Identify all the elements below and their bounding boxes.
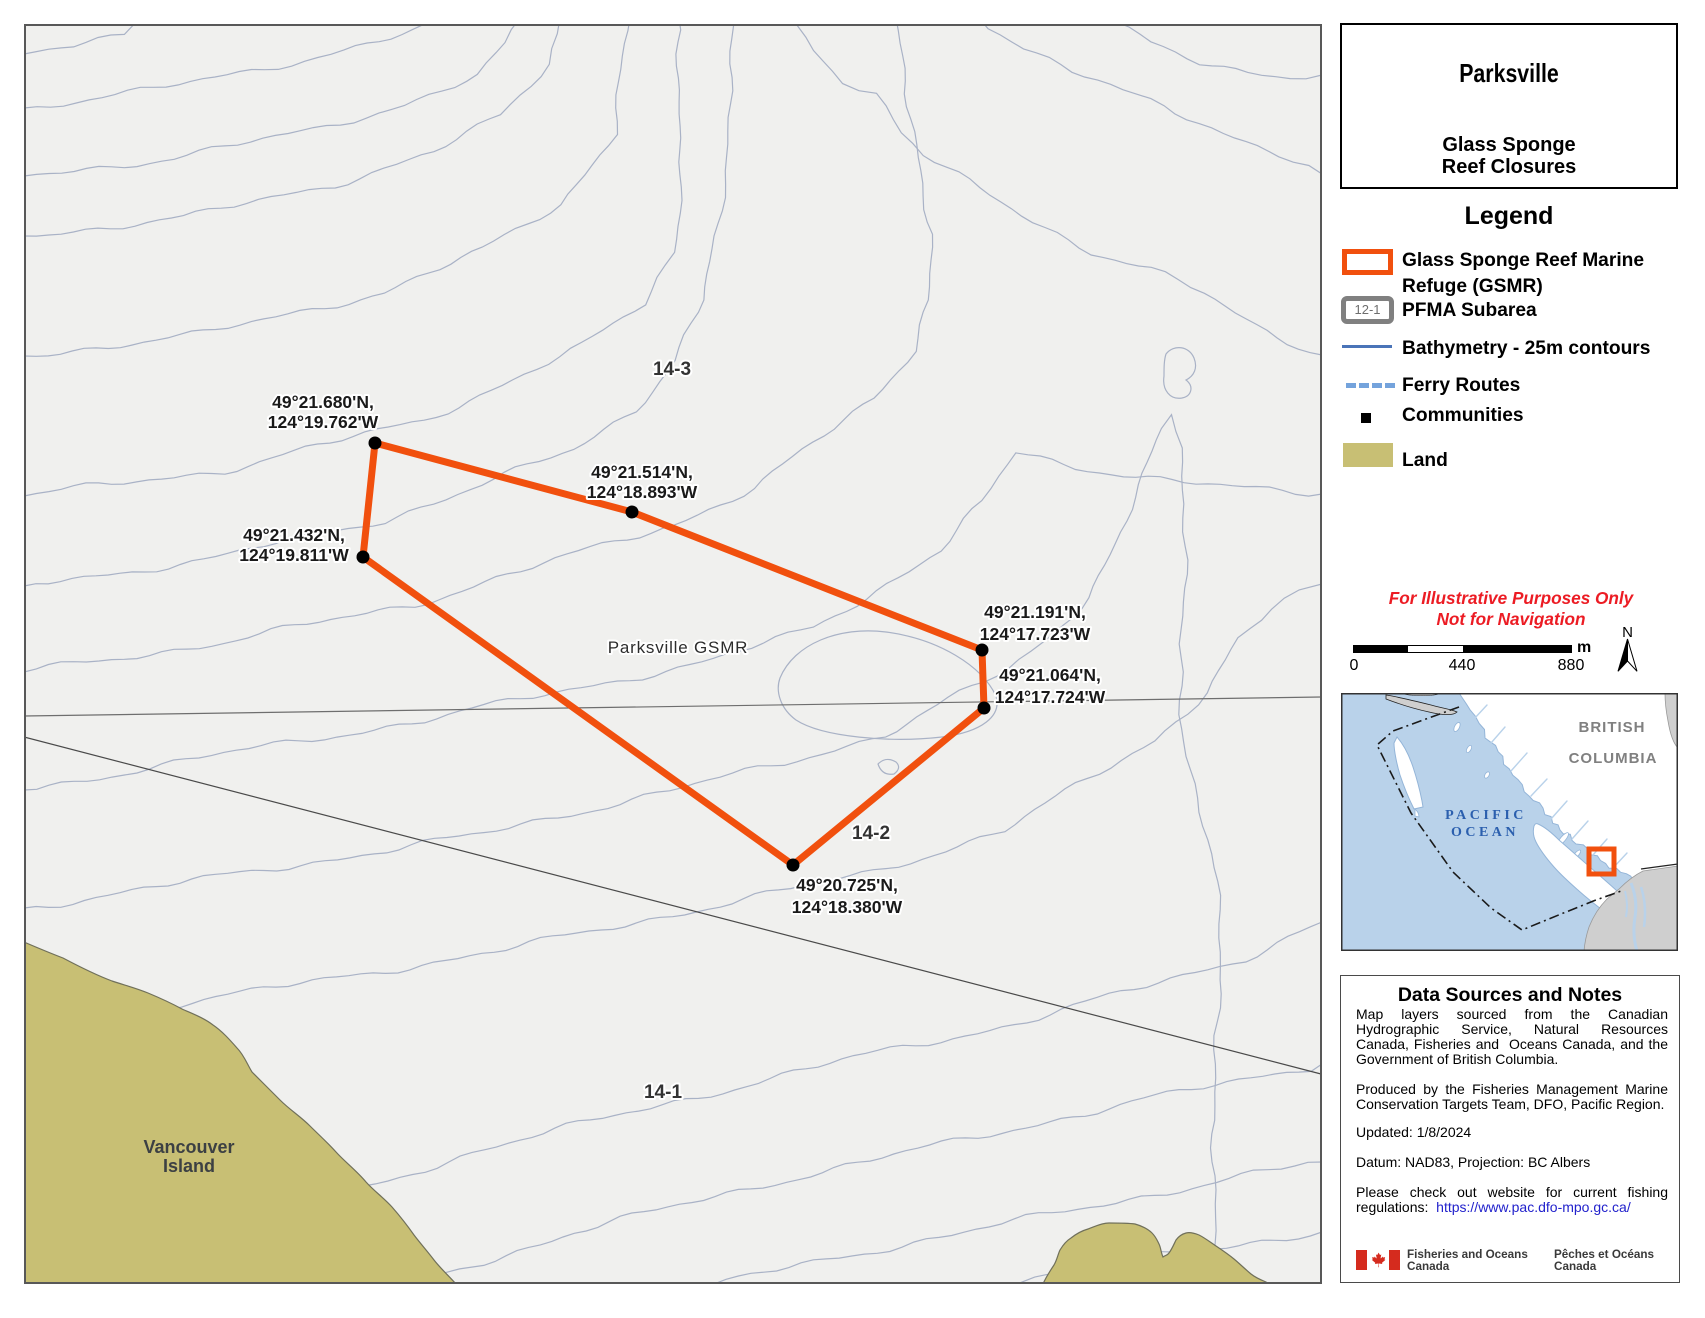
svg-text:124°19.811'W: 124°19.811'W [239,545,349,565]
svg-text:BRITISH: BRITISH [1579,719,1646,736]
svg-text:OCEAN: OCEAN [1451,825,1519,840]
svg-text:124°19.762'W: 124°19.762'W [268,412,379,432]
svg-text:Parksville GSMR: Parksville GSMR [608,638,748,657]
svg-text:14-1: 14-1 [644,1082,682,1103]
svg-text:PACIFIC: PACIFIC [1445,808,1527,823]
svg-text:Vancouver: Vancouver [143,1137,234,1157]
svg-text:49°21.432'N,: 49°21.432'N, [243,525,345,545]
svg-text:49°20.725'N,: 49°20.725'N, [796,875,898,895]
svg-text:49°21.514'N,: 49°21.514'N, [591,462,693,482]
svg-text:N: N [1622,624,1633,641]
svg-text:49°21.680'N,: 49°21.680'N, [272,392,374,412]
svg-text:124°18.380'W: 124°18.380'W [792,897,903,917]
svg-text:124°17.723'W: 124°17.723'W [980,624,1091,644]
svg-text:COLUMBIA: COLUMBIA [1569,750,1658,767]
svg-text:49°21.191'N,: 49°21.191'N, [984,602,1086,622]
svg-text:49°21.064'N,: 49°21.064'N, [999,665,1101,685]
svg-text:124°17.724'W: 124°17.724'W [995,687,1106,707]
svg-text:124°18.893'W: 124°18.893'W [587,482,698,502]
svg-text:Island: Island [163,1156,215,1176]
svg-text:14-3: 14-3 [653,359,691,380]
svg-text:14-2: 14-2 [852,823,890,844]
